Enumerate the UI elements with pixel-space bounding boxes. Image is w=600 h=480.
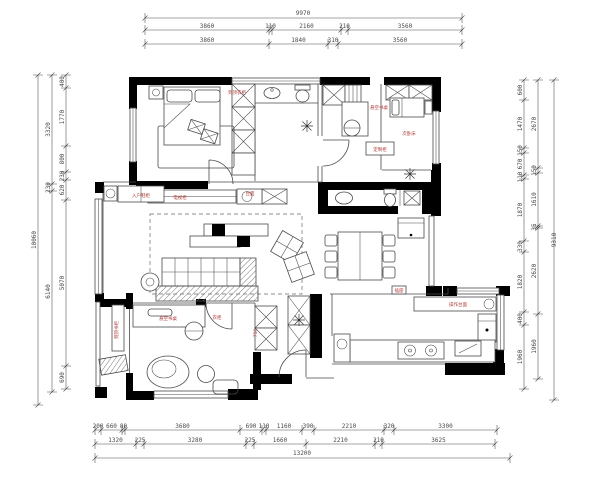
fridge <box>398 218 424 238</box>
dimension-label: 400 <box>59 76 66 87</box>
dimension-label: 6140 <box>45 284 52 299</box>
balcony <box>99 355 128 375</box>
cabinet <box>232 153 255 175</box>
dimension-label: 5070 <box>59 275 66 290</box>
dim-total-top: 9970 <box>296 10 311 17</box>
door-swing-icon <box>209 160 233 184</box>
sink-icon <box>264 88 280 99</box>
ceiling-light-icon <box>404 168 416 180</box>
chair <box>325 251 337 262</box>
tray <box>148 309 172 316</box>
dimension-label: 400 <box>517 313 524 324</box>
dim-total-bottom: 13200 <box>293 450 311 457</box>
dimension-label: 150 <box>517 145 524 156</box>
dimension-label: 225 <box>245 437 256 444</box>
dimension-label: 800 <box>59 153 66 164</box>
dimension-label: 210 <box>339 23 350 30</box>
dimension-label: 3560 <box>398 23 413 30</box>
window-icon <box>433 111 439 164</box>
sliding-door-icon <box>99 355 128 375</box>
dimension-label: 620 <box>59 184 66 195</box>
dimension-label: 3300 <box>438 423 453 430</box>
annotation-label: 悬空书桌 <box>370 104 388 111</box>
wardrobe-icon <box>255 306 277 328</box>
annotation-label: 定制柜 <box>373 146 387 153</box>
dimension-label: 200 <box>93 423 104 430</box>
toilet-icon <box>296 90 309 102</box>
floor-plan-drawing: 9970 13200 10060 9310 386011021602103560… <box>0 0 600 480</box>
dimension-label: 1470 <box>517 116 524 131</box>
sink-icon <box>336 192 353 204</box>
toilet-icon <box>385 194 396 207</box>
nightstand <box>425 101 432 114</box>
window-icon <box>429 216 434 286</box>
dimension-label: 1160 <box>277 423 292 430</box>
dimension-label: 2160 <box>299 23 314 30</box>
dimension-label: 1610 <box>531 192 538 207</box>
window-icon <box>95 199 102 294</box>
dimension-label: 310 <box>328 37 339 44</box>
dimension-chain: 40017708002306205070690 <box>59 73 71 392</box>
dimension-label: 230 <box>59 170 66 181</box>
dimension-chain: 6001470150670110187033018204001960 <box>517 78 529 392</box>
dimension-label: 1820 <box>517 274 524 289</box>
dimension-label: 1660 <box>273 437 288 444</box>
annotation-label: 操作台面 <box>449 301 467 308</box>
wardrobe-icon <box>404 191 420 205</box>
toilet-tank <box>295 85 310 90</box>
chair <box>383 267 395 278</box>
annotation-label: 电视柜 <box>173 194 187 201</box>
dimension-label: 1770 <box>59 109 66 124</box>
dimension-label: 110 <box>517 171 524 182</box>
pillow <box>195 90 220 102</box>
wardrobe-icon <box>232 130 255 153</box>
dimension-label: 3280 <box>188 437 203 444</box>
tall-unit <box>478 314 496 342</box>
dimension-label: 150 <box>531 165 538 176</box>
dimension-label: 80 <box>120 423 128 430</box>
dimension-label: 3680 <box>175 423 190 430</box>
door-swing-icon <box>323 140 349 166</box>
dimension-chain: 386011021602103560 <box>143 23 465 35</box>
annotation-label: 到顶书柜 <box>113 321 120 339</box>
dimension-label: 690 <box>246 423 257 430</box>
pillow <box>392 100 399 115</box>
nightstand <box>149 86 163 99</box>
dimension-label: 2670 <box>531 116 538 131</box>
window-icon <box>232 78 320 84</box>
annotation-label: 次卧床 <box>402 130 416 137</box>
dimension-label: 110 <box>265 23 276 30</box>
chair <box>325 267 337 278</box>
kitchen-sink <box>334 334 350 362</box>
dimension-chains: 3860110216021035603860184031035602006608… <box>45 23 543 449</box>
dimension-label: 3860 <box>200 37 215 44</box>
dimension-chain: 33202306140 <box>45 73 57 395</box>
dimension-label: 690 <box>59 372 66 383</box>
pillow <box>167 90 192 102</box>
dimension-label: 330 <box>517 241 524 252</box>
dimension-label: 230 <box>45 182 52 193</box>
dimension-label: 660 <box>106 423 117 430</box>
annotation-label: 入户鞋柜 <box>132 192 150 199</box>
dimension-label: 225 <box>135 437 146 444</box>
dimension-label: 1960 <box>517 349 524 364</box>
stove-icon <box>398 342 444 359</box>
dimension-label: 2210 <box>342 423 357 430</box>
dimension-label: 210 <box>373 437 384 444</box>
window-icon <box>130 108 136 162</box>
dimension-label: 2620 <box>531 263 538 278</box>
cutting-board <box>455 341 481 356</box>
dimension-chain: 386018403103560 <box>143 37 465 49</box>
kitchen <box>334 286 496 362</box>
window-icon <box>497 295 504 350</box>
ceiling-light-icon <box>301 120 313 132</box>
dimension-label: 3625 <box>431 437 446 444</box>
dim-total-right: 9310 <box>551 232 558 247</box>
window-icon <box>154 391 228 398</box>
dimension-label: 3860 <box>200 23 215 30</box>
annotation-label: 悬空书桌 <box>159 315 177 322</box>
dimension-label: 670 <box>517 158 524 169</box>
coffee-table <box>190 224 268 247</box>
dimension-label: 1320 <box>108 437 123 444</box>
washing-machine <box>104 186 117 201</box>
annotation-label: 插座 <box>395 287 404 294</box>
living-room <box>141 189 314 301</box>
dining-room <box>325 218 424 280</box>
dimension-label: 320 <box>384 423 395 430</box>
wardrobe-icon <box>262 189 287 204</box>
ceiling-light-icon <box>293 314 305 326</box>
dimension-label: 2210 <box>333 437 348 444</box>
side-table <box>141 273 159 291</box>
dimension-label: 3320 <box>45 122 52 137</box>
dimension-label: 1960 <box>531 339 538 354</box>
sofa <box>156 258 258 301</box>
annotation-label: 到顶衣柜 <box>228 89 246 96</box>
dim-total-left: 10060 <box>31 231 38 249</box>
wardrobe-icon <box>288 325 310 354</box>
bathroom-2 <box>336 189 401 207</box>
chair <box>383 251 395 262</box>
dimension-label: 110 <box>259 423 270 430</box>
master-bedroom <box>149 86 234 184</box>
dimension-chain: 267015016103526201960 <box>531 78 543 382</box>
dimension-chain: 13202253280225166022102103625 <box>93 437 498 449</box>
dimension-label: 600 <box>517 84 524 95</box>
annotation-label: 台面 <box>246 190 255 197</box>
chair <box>383 235 395 246</box>
window-icon <box>457 288 499 294</box>
dimension-label: 1870 <box>517 202 524 217</box>
wardrobe-icon <box>232 107 255 130</box>
dimension-chain: 200660803680690110116039022103203300 <box>93 423 500 435</box>
ottoman <box>198 366 215 383</box>
dimension-label: 35 <box>531 223 538 231</box>
lounge-chair <box>147 356 215 388</box>
dimension-label: 3560 <box>393 37 408 44</box>
window-icon <box>96 302 100 386</box>
ensuite-bathroom <box>255 85 318 103</box>
floor-plan-canvas: 9970 13200 10060 9310 386011021602103560… <box>0 0 600 480</box>
dimension-label: 1840 <box>291 37 306 44</box>
annotation-label: 750 <box>253 329 259 338</box>
dimension-label: 390 <box>303 423 314 430</box>
chair <box>325 235 337 246</box>
annotation-label: 衣柜 <box>213 314 222 321</box>
bedroom-2 <box>390 98 432 117</box>
